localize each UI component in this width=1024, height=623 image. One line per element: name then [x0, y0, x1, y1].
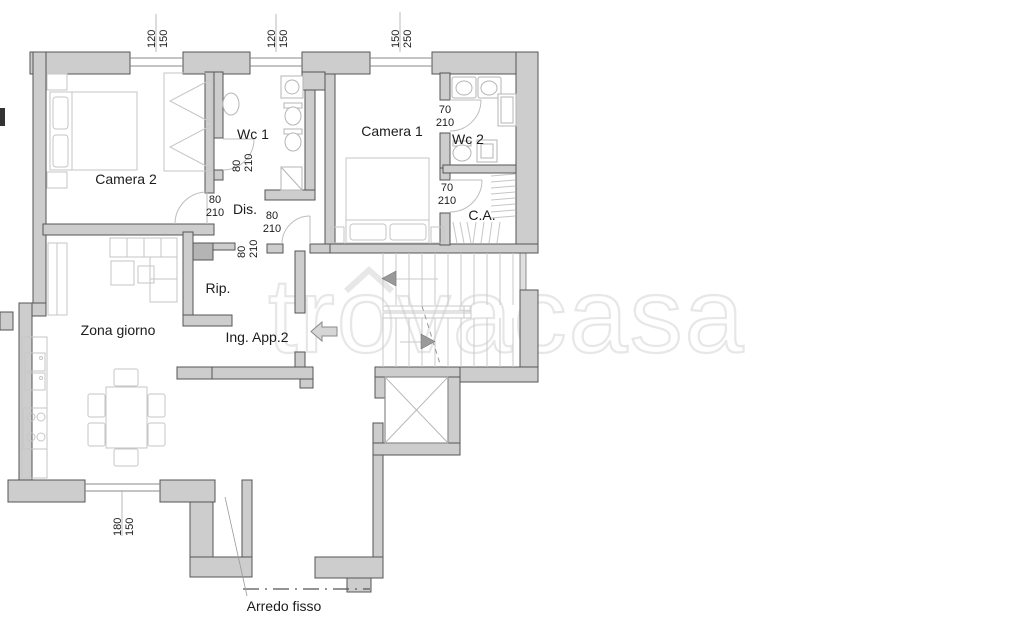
svg-text:210: 210: [243, 154, 255, 172]
svg-text:150: 150: [278, 30, 290, 48]
door-dis: [282, 216, 310, 244]
door-dim-dis: 80 210: [263, 210, 281, 235]
svg-text:70: 70: [441, 182, 453, 194]
room-label-ingresso: Ing. App.2: [225, 329, 288, 345]
furniture-camera1: [331, 158, 444, 243]
room-label-zona-giorno: Zona giorno: [81, 322, 156, 338]
svg-text:80: 80: [236, 246, 248, 258]
window-dim-1: 120 150: [146, 30, 170, 48]
window-dim-2: 120 150: [266, 30, 290, 48]
door-dim-ca: 70 210: [438, 182, 456, 207]
svg-text:70: 70: [439, 104, 451, 116]
svg-text:250: 250: [402, 30, 414, 48]
room-label-camera2: Camera 2: [95, 171, 157, 187]
watermark: trovacasa: [268, 257, 746, 375]
room-label-wc1: Wc 1: [237, 126, 269, 142]
svg-text:210: 210: [263, 223, 281, 235]
watermark-text: trovacasa: [268, 257, 746, 375]
fixtures-wc2: [452, 77, 516, 162]
svg-text:120: 120: [146, 30, 158, 48]
left-edge-mark: [0, 108, 5, 126]
room-label-ca: C.A.: [468, 207, 495, 223]
door-wc2: [450, 100, 481, 131]
window-2: [250, 58, 302, 66]
svg-text:80: 80: [209, 194, 221, 206]
column: [193, 243, 213, 260]
floor-plan: trovacasa: [0, 0, 1024, 623]
svg-text:80: 80: [266, 210, 278, 222]
svg-text:150: 150: [390, 30, 402, 48]
window-3: [370, 58, 432, 66]
floor-plan-page: trovacasa: [0, 0, 1024, 623]
window-dim-3: 150 250: [390, 30, 414, 48]
svg-text:210: 210: [248, 240, 260, 258]
room-label-rip: Rip.: [206, 280, 231, 296]
svg-text:210: 210: [436, 117, 454, 129]
svg-text:210: 210: [438, 195, 456, 207]
window-dim-4: 180 150: [112, 518, 136, 536]
label-arredo-fisso: Arredo fisso: [247, 598, 322, 614]
room-label-dis: Dis.: [233, 201, 257, 217]
room-label-wc2: Wc 2: [452, 131, 484, 147]
svg-text:180: 180: [112, 518, 124, 536]
svg-text:150: 150: [124, 518, 136, 536]
door-dim-wc2: 70 210: [436, 104, 454, 129]
svg-text:80: 80: [231, 160, 243, 172]
window-4: [85, 484, 160, 491]
svg-text:120: 120: [266, 30, 278, 48]
door-dim-wc1: 80 210: [231, 154, 255, 172]
window-1: [130, 58, 183, 66]
door-camera2: [175, 192, 207, 224]
svg-text:150: 150: [158, 30, 170, 48]
door-dim-camera2: 80 210: [206, 194, 224, 219]
svg-text:210: 210: [206, 207, 224, 219]
door-dim-passage: 80 210: [236, 240, 260, 258]
elevator: [373, 367, 460, 455]
left-edge-stub: [0, 312, 13, 330]
room-label-camera1: Camera 1: [361, 123, 423, 139]
